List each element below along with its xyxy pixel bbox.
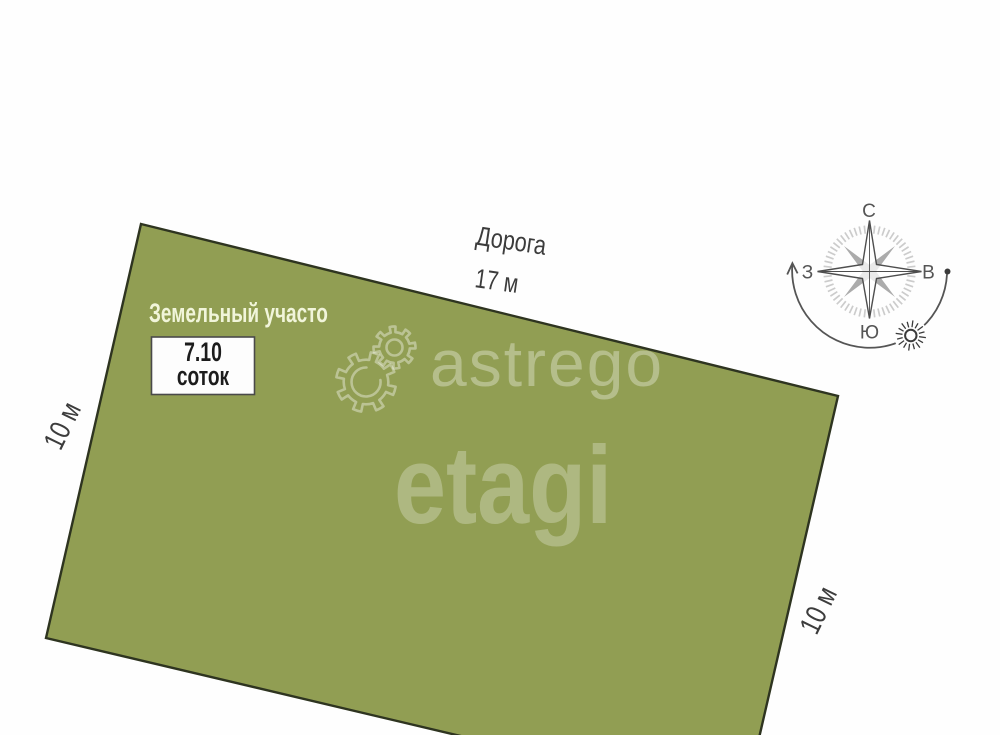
svg-text:Ю: Ю <box>860 323 879 344</box>
svg-text:17 м: 17 м <box>473 264 520 300</box>
svg-text:З: З <box>802 263 813 284</box>
svg-text:С: С <box>862 201 876 222</box>
svg-text:etagi: etagi <box>394 424 612 547</box>
svg-text:соток: соток <box>177 361 230 391</box>
svg-text:В: В <box>922 263 935 284</box>
svg-text:Земельный участо: Земельный участо <box>149 298 328 328</box>
svg-text:astrego: astrego <box>430 326 664 400</box>
